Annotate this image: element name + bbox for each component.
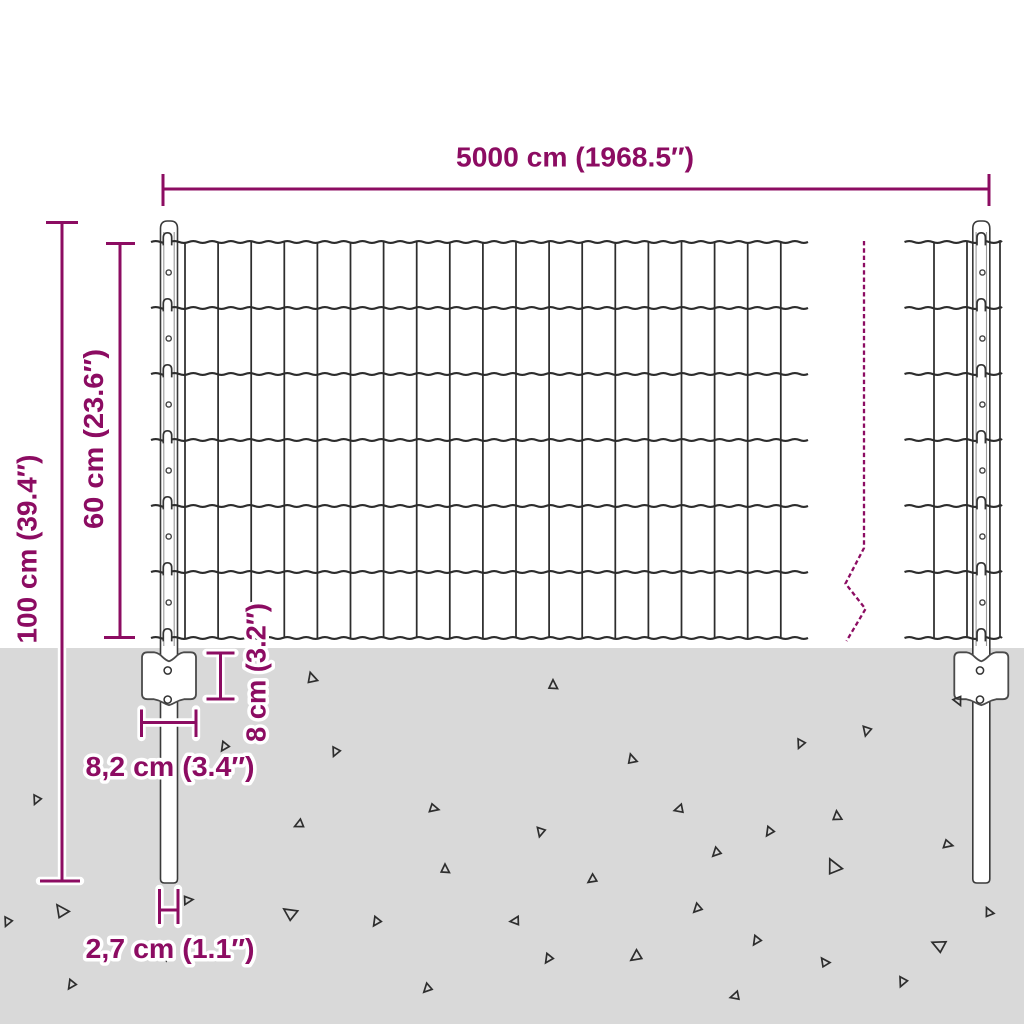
svg-text:5000 cm (1968.5″): 5000 cm (1968.5″) (456, 142, 694, 173)
svg-text:2,7 cm (1.1″): 2,7 cm (1.1″) (86, 933, 255, 964)
svg-text:100 cm (39.4″): 100 cm (39.4″) (12, 455, 43, 644)
svg-text:60 cm (23.6″): 60 cm (23.6″) (78, 349, 109, 529)
svg-text:8,2 cm (3.4″): 8,2 cm (3.4″) (86, 751, 255, 782)
svg-text:8 cm (3.2″): 8 cm (3.2″) (241, 603, 272, 742)
